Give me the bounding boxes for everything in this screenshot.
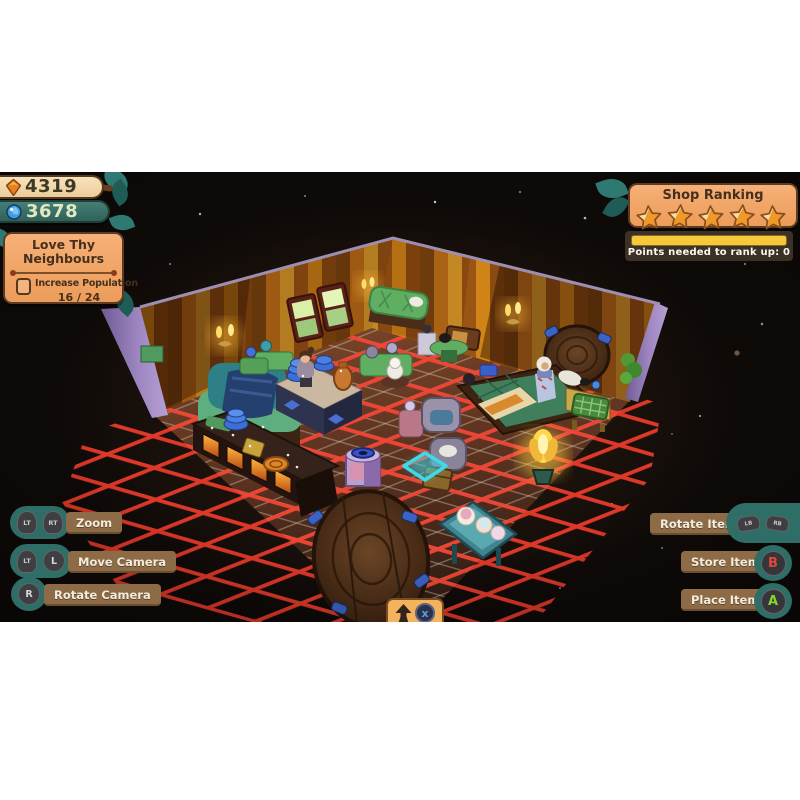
hint-rotate-camera-buttons: R [11, 577, 47, 611]
hint-rotate-item-buttons: LB RB [726, 503, 800, 543]
quest-panel: Love Thy Neighbours Increase Population … [3, 232, 124, 304]
hint-zoom-buttons: LT RT [10, 506, 70, 539]
quest-divider [13, 272, 114, 274]
rank-points-label: Points needed to rank up: 0 [625, 247, 793, 258]
b-button[interactable]: B [761, 551, 786, 576]
orbs-value: 3678 [26, 203, 78, 221]
zoom-label: Zoom [66, 512, 122, 534]
orange-gem-icon [6, 179, 21, 196]
game-viewport[interactable]: 4319 3678 Love Thy Neighbours Increase P… [0, 172, 800, 622]
rating-stars [634, 204, 792, 230]
objective-progress: 16 / 24 [35, 291, 123, 304]
screenshot-page: 4319 3678 Love Thy Neighbours Increase P… [0, 0, 800, 800]
l-stick-button[interactable]: L [43, 550, 65, 572]
star-icon [668, 204, 693, 227]
rank-progress-box: Points needed to rank up: 0 [625, 231, 793, 261]
rank-progress-bar [631, 235, 787, 246]
star-icon [761, 205, 786, 228]
shop-ranking-title: Shop Ranking [630, 188, 796, 203]
star-icon [730, 204, 755, 228]
bottom-hint-pill: x [386, 598, 444, 622]
lt-button[interactable]: LT [17, 550, 37, 573]
rotate-camera-label: Rotate Camera [44, 584, 161, 606]
lt-button[interactable]: LT [17, 511, 37, 534]
r-stick-button[interactable]: R [18, 583, 40, 605]
objective-label: Increase Population [35, 278, 123, 290]
lb-button[interactable]: LB [736, 514, 761, 532]
star-icon [699, 205, 724, 228]
up-arrow-icon [395, 604, 412, 623]
hint-place-item-buttons: A [754, 583, 792, 619]
x-button[interactable]: x [415, 603, 435, 622]
blue-orb-icon [6, 204, 22, 220]
rb-button[interactable]: RB [765, 514, 790, 532]
currency-gems: 4319 [0, 175, 104, 199]
rt-button[interactable]: RT [43, 511, 63, 534]
gems-value: 4319 [25, 178, 77, 196]
shop-ranking-panel: Shop Ranking [628, 183, 798, 228]
objective-checkbox [16, 278, 31, 295]
quest-title: Love Thy Neighbours [5, 238, 122, 266]
currency-orbs: 3678 [0, 200, 110, 223]
a-button[interactable]: A [761, 589, 786, 614]
star-icon [637, 205, 662, 229]
hint-store-item-buttons: B [754, 545, 792, 581]
move-camera-label: Move Camera [68, 551, 176, 573]
hint-move-camera-buttons: LT L [10, 544, 72, 578]
